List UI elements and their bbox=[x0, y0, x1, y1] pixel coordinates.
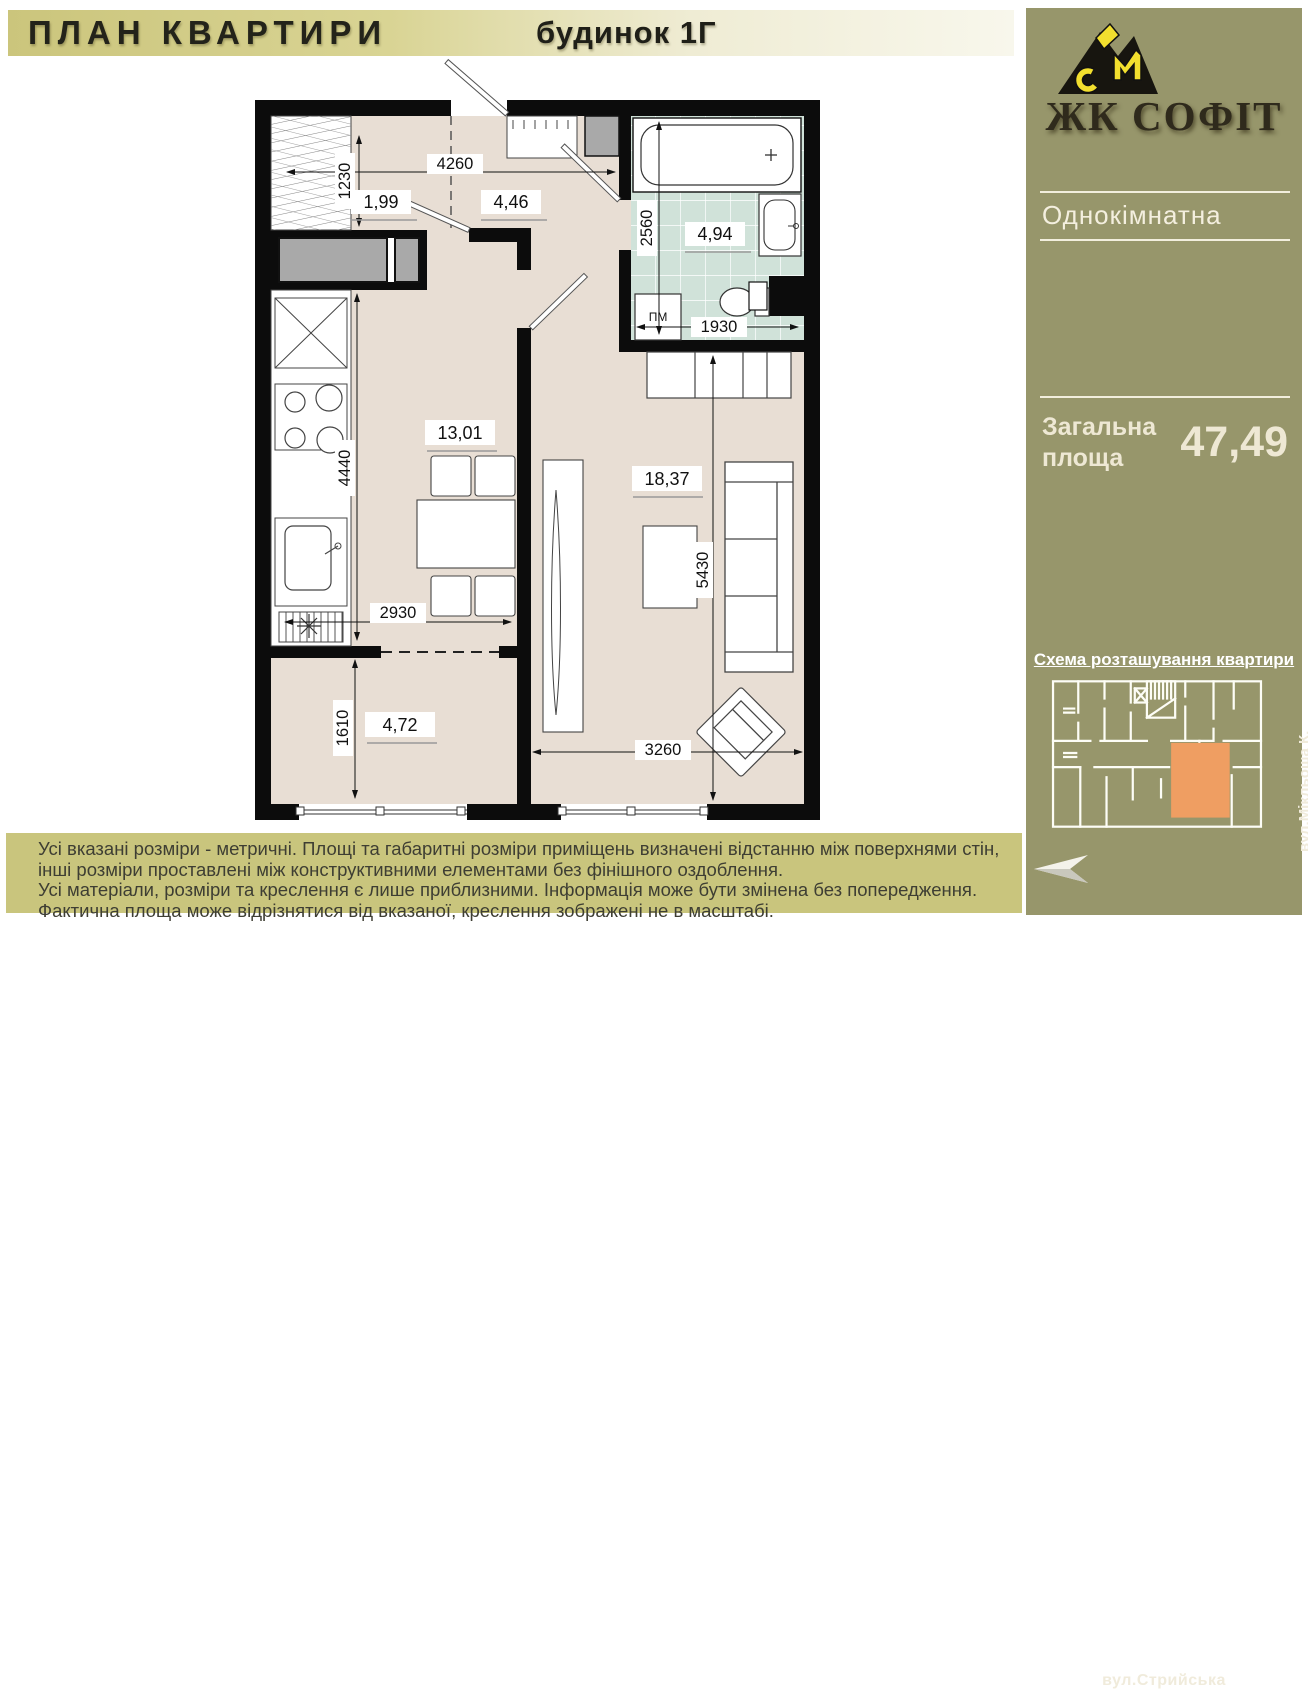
page: { "header": { "title": "ПЛАН КВАРТИРИ", … bbox=[0, 0, 1308, 924]
svg-text:4,94: 4,94 bbox=[697, 224, 732, 244]
location-minimap bbox=[1050, 678, 1264, 830]
dim-4260: 4260 bbox=[427, 154, 483, 174]
svg-text:18,37: 18,37 bbox=[644, 469, 689, 489]
floor-plan: ПМ bbox=[255, 50, 820, 825]
sidebar: ЖК СОФІТ Однокімнатна Загальна площа 47,… bbox=[1026, 8, 1302, 915]
svg-text:3260: 3260 bbox=[645, 741, 682, 759]
disclaimer-line-3: Усі матеріали, розміри та креслення є ли… bbox=[38, 880, 1022, 901]
dim-5430: 5430 bbox=[693, 542, 713, 598]
svg-text:5430: 5430 bbox=[694, 552, 712, 589]
tv-cabinet bbox=[543, 460, 583, 732]
entrance-cabinet bbox=[585, 116, 619, 156]
dim-4440: 4440 bbox=[335, 440, 355, 496]
brand-logo-icon bbox=[1056, 16, 1160, 96]
svg-text:1,99: 1,99 bbox=[363, 192, 398, 212]
svg-text:4,72: 4,72 bbox=[382, 715, 417, 735]
brand-name: ЖК СОФІТ bbox=[1026, 92, 1302, 140]
svg-text:4260: 4260 bbox=[437, 155, 474, 173]
dining-set bbox=[417, 456, 515, 616]
street-label-bottom: вул.Стрийська bbox=[1026, 1672, 1302, 1690]
scheme-title: Схема розташування квартири bbox=[1026, 650, 1302, 670]
disclaimer-line-4: Фактична площа може відрізнятися від вка… bbox=[38, 901, 1022, 922]
dim-3260: 3260 bbox=[635, 740, 691, 760]
dim-2560: 2560 bbox=[637, 200, 657, 256]
disclaimer-line-1: Усі вказані розміри - метричні. Площі та… bbox=[38, 839, 1022, 860]
direction-arrow-icon bbox=[1032, 852, 1090, 888]
total-area-word-1: Загальна bbox=[1042, 412, 1156, 443]
bathtub bbox=[633, 118, 801, 192]
washbasin bbox=[759, 194, 801, 256]
floor-plan-svg: ПМ bbox=[255, 50, 820, 820]
svg-text:1610: 1610 bbox=[334, 710, 352, 747]
sofa bbox=[725, 462, 793, 672]
living-window bbox=[558, 805, 708, 819]
dim-1610: 1610 bbox=[333, 700, 353, 756]
total-area-value: 47,49 bbox=[1180, 418, 1288, 467]
total-area-label: Загальна площа bbox=[1042, 412, 1156, 474]
svg-text:1930: 1930 bbox=[701, 318, 738, 336]
dim-1930: 1930 bbox=[691, 317, 747, 337]
page-title: ПЛАН КВАРТИРИ bbox=[28, 14, 387, 52]
divider bbox=[1040, 396, 1290, 398]
bath-niche bbox=[749, 282, 767, 310]
divider bbox=[1040, 191, 1290, 193]
dim-2930: 2930 bbox=[370, 603, 426, 623]
entrance-door bbox=[445, 60, 509, 116]
building-label: будинок 1Г bbox=[536, 15, 717, 51]
svg-text:2560: 2560 bbox=[638, 210, 656, 247]
sidebar-footer: вул.Стрийська bbox=[1026, 816, 1302, 916]
disclaimer: Усі вказані розміри - метричні. Площі та… bbox=[6, 833, 1022, 913]
apartment-highlight bbox=[1171, 743, 1230, 818]
svg-text:13,01: 13,01 bbox=[437, 423, 482, 443]
balcony-window bbox=[296, 805, 467, 819]
disclaimer-line-2: інші розміри проставлені між конструктив… bbox=[38, 860, 1022, 881]
closet-blocks bbox=[279, 238, 419, 282]
divider bbox=[1040, 239, 1290, 241]
svg-text:4440: 4440 bbox=[336, 450, 354, 487]
apartment-type: Однокімнатна bbox=[1042, 200, 1222, 231]
total-area-word-2: площа bbox=[1042, 443, 1156, 474]
washing-machine-label: ПМ bbox=[649, 310, 668, 324]
svg-text:2930: 2930 bbox=[380, 604, 417, 622]
washing-machine: ПМ bbox=[635, 294, 681, 340]
svg-text:4,46: 4,46 bbox=[493, 192, 528, 212]
coffee-table bbox=[643, 526, 697, 608]
living-wardrobe bbox=[647, 352, 791, 398]
